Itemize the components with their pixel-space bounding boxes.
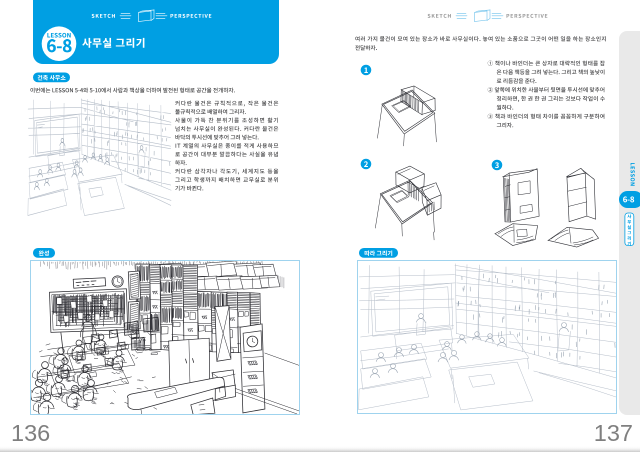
svg-text:137: 137 xyxy=(594,420,633,446)
svg-text:136: 136 xyxy=(11,420,50,446)
